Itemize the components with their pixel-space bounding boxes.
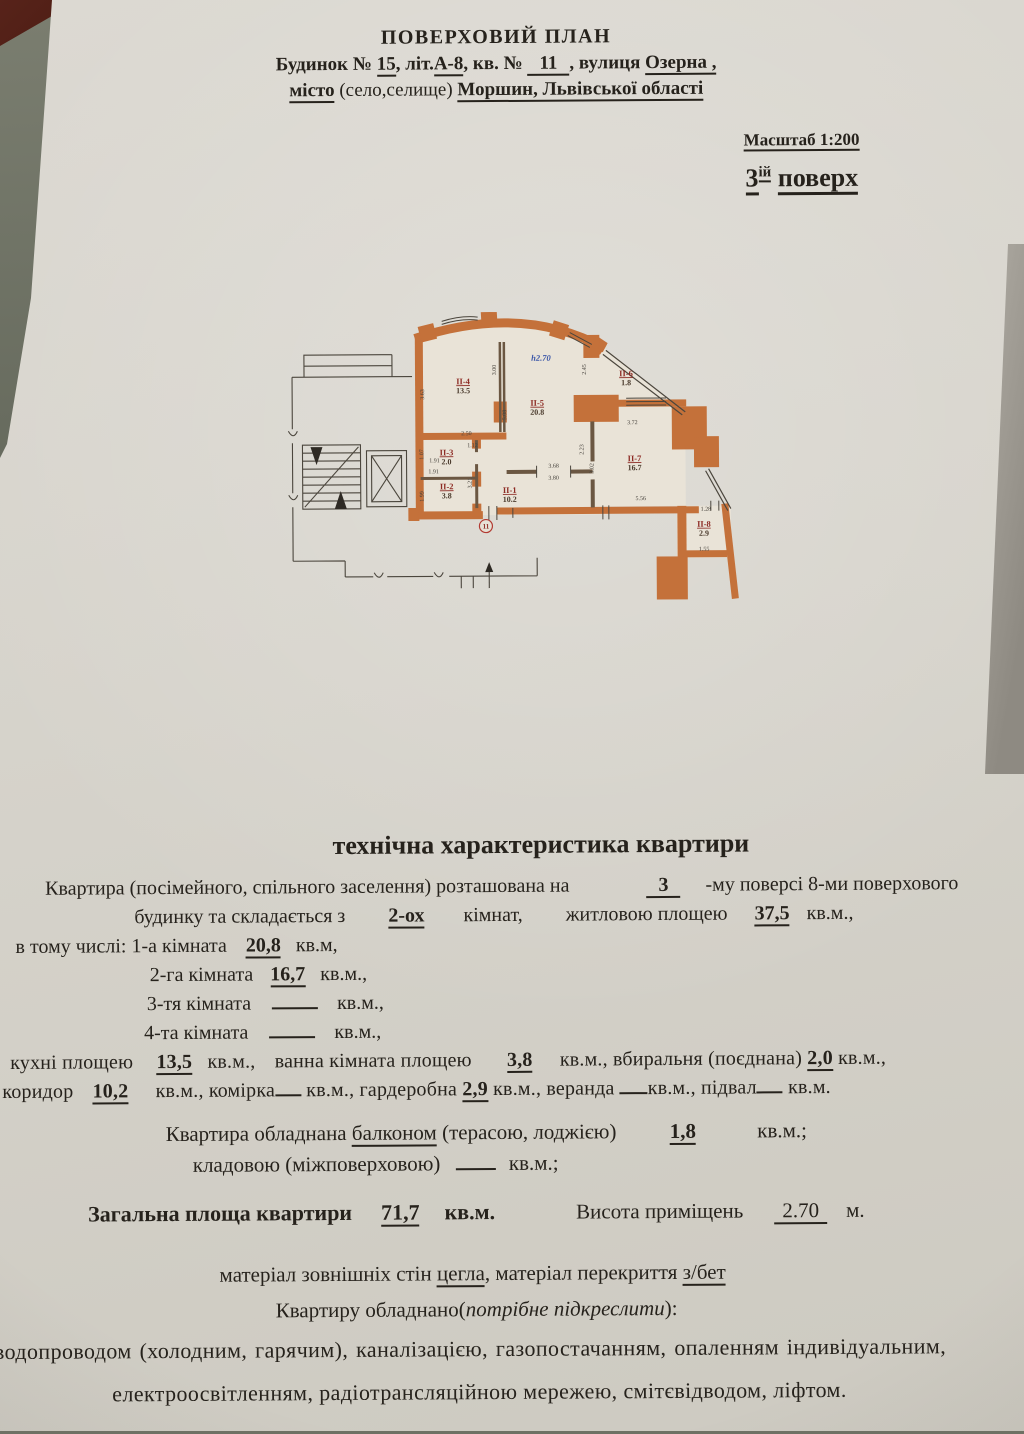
value-slab-material: з/бет: [683, 1260, 726, 1286]
text: кладовою (міжповерховою): [193, 1151, 441, 1177]
text: кв.м.,: [807, 902, 854, 924]
text: 4-та кімната: [144, 1022, 249, 1045]
room-label-area: 10.2: [503, 495, 517, 504]
text: матеріал зовнішніх стін: [219, 1261, 431, 1286]
address-label: Будинок №: [276, 54, 372, 76]
apartment-number-badge: 11: [479, 520, 492, 533]
text: водопроводом (холодним, гарячим), каналі…: [0, 1333, 946, 1364]
blank-value: [757, 1076, 783, 1093]
blank-value: [456, 1153, 496, 1170]
value-hall-area: 10,2: [93, 1080, 129, 1104]
document-content: ПОВЕРХОВИЙ ПЛАН Будинок № 15, літ.А-8, к…: [0, 0, 1024, 1434]
text: Висота приміщень: [576, 1199, 743, 1224]
tech-line-5: 3-тя кімната кв.м.,: [147, 992, 384, 1016]
room-label-id: ІІ-4: [456, 376, 471, 386]
value-wardrobe-area: 2,9: [462, 1078, 488, 1102]
tech-line-9: Квартира обладнана балконом (терасою, ло…: [166, 1118, 807, 1147]
room-label-area: 16.7: [628, 463, 642, 472]
text: ):: [665, 1296, 678, 1320]
scanned-floor-plan-photo: { "header": { "title": "ПОВЕРХОВИЙ ПЛАН"…: [0, 0, 1024, 1431]
dimension: 2.50: [461, 431, 472, 437]
text: кв.м.: [788, 1076, 831, 1098]
tech-line-15: електроосвітленням, радіотрансляційною м…: [112, 1377, 847, 1407]
floor-label: 3ій поверх: [697, 163, 907, 194]
dimension: 3.02: [590, 463, 596, 474]
blank-value: [272, 992, 318, 1009]
value-living-area: 37,5: [755, 902, 790, 926]
tech-line-10: кладовою (міжповерховою) кв.м.;: [193, 1151, 559, 1178]
dimension: 1.99: [420, 491, 426, 502]
dimension: 5.08: [502, 410, 508, 421]
address-line-1: Будинок № 15, літ.А-8, кв. № 11, вулиця …: [246, 51, 746, 76]
dimension: 1.07: [419, 449, 425, 460]
tech-line-7: кухні площею 13,5 кв.м., ванна кімната п…: [10, 1047, 886, 1075]
text: кв.м.,: [320, 963, 367, 985]
text: кв.м.,: [560, 1048, 608, 1070]
text: м.: [846, 1198, 865, 1222]
dimension: 5.56: [636, 496, 647, 502]
value-total-area: 71,7: [381, 1200, 420, 1227]
floor-word: поверх: [778, 163, 859, 195]
dimension: 2.23: [579, 444, 585, 455]
text: 2-га кімната: [150, 964, 254, 987]
address-label: , літ.: [396, 53, 434, 74]
letter-code: А-8: [434, 53, 464, 76]
blank-value: [269, 1021, 315, 1038]
dimension: 1.12: [467, 443, 478, 449]
tech-line-6: 4-та кімната кв.м.,: [144, 1021, 381, 1045]
address-label: , кв. №: [463, 53, 522, 74]
dimension: 3.63: [420, 389, 426, 400]
value-floor: 3: [646, 874, 680, 898]
stairs-down-arrow-icon: [310, 447, 322, 465]
text: кв.м.,: [334, 1021, 381, 1043]
floor-number: 3: [745, 163, 758, 195]
street-name: Озерна ,: [645, 52, 717, 75]
text: будинку та складається з: [134, 905, 345, 928]
floor-plan: ІІ-1 10.2 ІІ-2 3.8 ІІ-3 2.0 ІІ-4 13.5 ІІ…: [274, 311, 746, 606]
city-label: місто: [289, 80, 334, 103]
text: кв.м.;: [509, 1151, 559, 1175]
underline-hint-italic: потрібне підкреслити: [466, 1296, 665, 1321]
text: Квартиру обладнано(: [276, 1297, 466, 1322]
scale-value: Масштаб 1:200: [744, 130, 860, 152]
text: кв.м.;: [757, 1118, 807, 1142]
room-label-area: 13.5: [456, 386, 470, 395]
text: (терасою, лоджією): [442, 1119, 617, 1144]
text: вбиральня (поєднана): [613, 1047, 802, 1070]
tech-line-2: будинку та складається з 2-ох кімнат, жи…: [134, 902, 853, 929]
section-heading: технічна характеристика квартири: [91, 827, 991, 862]
value-bath-area: 3,8: [507, 1049, 533, 1073]
room-label-area: 20.8: [530, 408, 544, 417]
text: кв.м,: [296, 934, 338, 956]
text: кв.м., веранда: [493, 1077, 615, 1100]
dimension: 1.91: [428, 469, 439, 475]
text: коридор: [2, 1081, 73, 1103]
dimension: 3.72: [627, 420, 638, 426]
entrance-arrow-icon: [485, 562, 493, 572]
text: кв.м., підвал: [648, 1076, 757, 1099]
room-label-id: ІІ-1: [503, 485, 517, 495]
dimension: 1.55: [699, 547, 710, 553]
tech-line-13: Квартиру обладнано(потрібне підкреслити)…: [276, 1296, 678, 1323]
document-title: ПОВЕРХОВИЙ ПЛАН: [256, 25, 736, 51]
room-label-id: ІІ-6: [619, 368, 633, 378]
address-label: , вулиця: [569, 52, 640, 73]
text: Квартира (посімейного, спільного заселен…: [45, 875, 569, 900]
text: кв.м., гардеробна: [306, 1078, 457, 1101]
dimension: 3.68: [548, 464, 559, 470]
tech-line-4: 2-га кімната 16,7 кв.м.,: [150, 963, 368, 987]
text: ванна кімната площею: [275, 1049, 472, 1072]
floor-suffix: ій: [758, 165, 771, 183]
tech-line-1: Квартира (посімейного, спільного заселен…: [45, 872, 958, 901]
tech-line-14: водопроводом (холодним, гарячим), каналі…: [0, 1333, 946, 1365]
text: житловою площею: [566, 903, 728, 926]
building-number: 15: [377, 54, 396, 77]
value-wc-area: 2,0: [807, 1047, 833, 1071]
value-kitchen-area: 13,5: [156, 1051, 192, 1075]
dimension: 1.28: [701, 507, 712, 513]
apartment-number: 11: [527, 53, 569, 76]
text: в тому числі: 1-а кімната: [15, 935, 226, 958]
dimension: 3.80: [548, 476, 559, 482]
apartment-number-text: 11: [483, 523, 490, 531]
value-room2-area: 16,7: [270, 963, 305, 987]
text: кімнат,: [463, 904, 522, 926]
blank-value: [275, 1079, 301, 1096]
value-room1-area: 20,8: [246, 934, 281, 958]
text: Загальна площа квартири: [88, 1200, 352, 1227]
room-label-area: 1.8: [621, 378, 631, 387]
settlement-hint: (село,селище): [339, 79, 452, 101]
text: 3-тя кімната: [147, 993, 251, 1016]
blank-value: [620, 1077, 648, 1094]
text: кв.м.,: [838, 1047, 886, 1069]
text: , матеріал перекриття: [485, 1260, 678, 1285]
room-label-id: ІІ-3: [440, 447, 454, 457]
room-label-area: 2.0: [442, 457, 452, 466]
value-ceiling-height: 2.70: [774, 1198, 827, 1224]
tech-line-11: Загальна площа квартири 71,7 кв.м. Висот…: [88, 1197, 865, 1228]
tech-line-8: коридор 10,2 кв.м., комірка кв.м., гарде…: [2, 1076, 831, 1104]
address-line-2: місто (село,селище) Моршин, Львівської о…: [246, 77, 746, 102]
value-balcony-word: балконом: [352, 1120, 437, 1147]
room-label-id: ІІ-8: [697, 519, 711, 529]
dimension: 2.45: [582, 364, 588, 375]
dimension: 1.91: [429, 458, 440, 464]
text: кв.м.,: [207, 1051, 255, 1073]
dimension: 3.21: [468, 478, 474, 489]
text: електроосвітленням, радіотрансляційною м…: [112, 1377, 847, 1406]
text: Квартира обладнана: [166, 1121, 347, 1146]
stairs-up-arrow-icon: [335, 491, 347, 509]
room-label-area: 2.9: [699, 529, 709, 538]
dimension: 3.00: [492, 365, 498, 376]
value-room-count: 2-ох: [388, 904, 424, 928]
room-label-id: ІІ-2: [440, 481, 454, 491]
ceiling-height-mark: h2.70: [531, 353, 551, 363]
value-balcony-area: 1,8: [670, 1119, 696, 1145]
value-wall-material: цегла: [437, 1261, 485, 1287]
text: кухні площею: [10, 1051, 133, 1074]
text: кв.м., комірка: [156, 1079, 276, 1102]
tech-line-12: матеріал зовнішніх стін цегла, матеріал …: [219, 1260, 725, 1288]
room-label-area: 3.8: [442, 491, 452, 500]
text: -му поверсі 8-ми поверхового: [705, 872, 958, 896]
room-label-id: ІІ-7: [628, 453, 643, 463]
room-label-id: ІІ-5: [530, 398, 544, 408]
tech-line-3: в тому числі: 1-а кімната 20,8 кв.м,: [15, 934, 337, 959]
city-name: Моршин, Львівської області: [457, 78, 703, 103]
text: кв.м.,: [337, 992, 384, 1014]
text: кв.м.: [444, 1199, 495, 1224]
scale-label: Масштаб 1:200: [697, 130, 907, 151]
